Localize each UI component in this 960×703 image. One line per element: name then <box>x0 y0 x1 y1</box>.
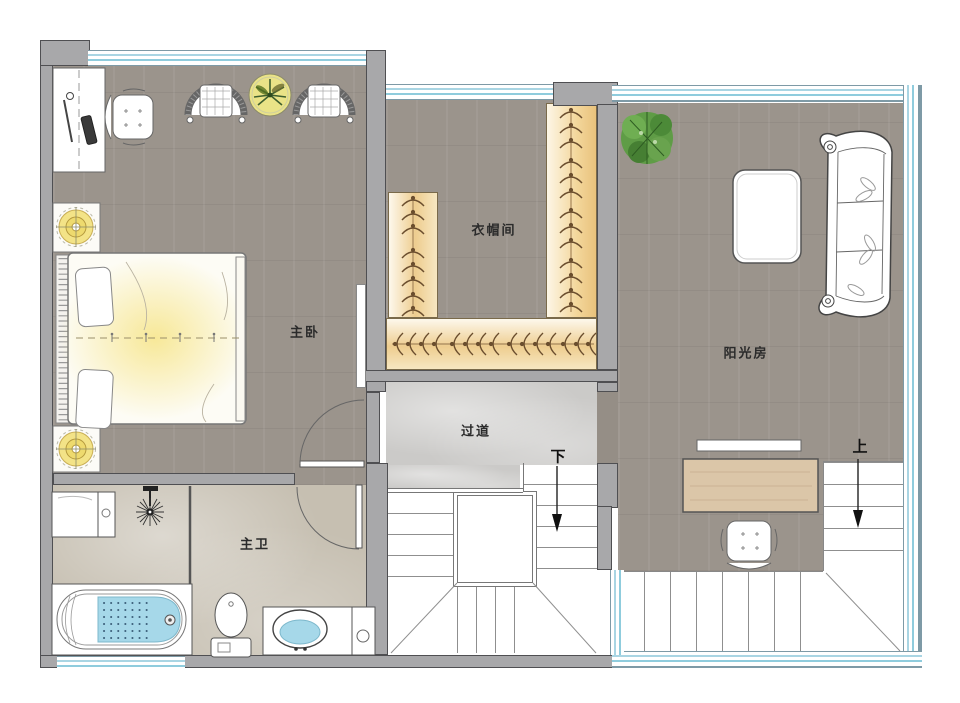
ceiling-shower <box>136 486 164 526</box>
laundry-unit <box>52 492 115 537</box>
coffee-table <box>733 170 801 263</box>
plant-table <box>249 74 291 116</box>
label-sunroom: 阳光房 <box>723 343 768 362</box>
bathtub <box>52 584 192 655</box>
up-arrow <box>853 459 863 528</box>
nightstand-top <box>53 203 100 252</box>
bedroom-desk <box>53 68 105 172</box>
down-arrow <box>552 466 562 532</box>
toilet <box>211 593 251 657</box>
curved-sofa <box>819 131 892 317</box>
label-master-bedroom: 主卧 <box>290 322 320 341</box>
label-master-bathroom: 主卫 <box>240 534 270 553</box>
bathroom-door <box>297 485 362 549</box>
rattan-chair-right <box>295 85 353 123</box>
hanger-rail-left <box>402 196 424 316</box>
bedroom-door <box>300 400 364 467</box>
sunroom-office-chair <box>721 521 777 569</box>
console-shelf <box>697 440 801 451</box>
label-stairs-down: 下 <box>550 446 565 467</box>
hanger-rail-bottom <box>392 333 596 355</box>
sunroom-desk <box>683 459 818 512</box>
stair-winder-lines <box>391 573 900 653</box>
sunroom-plant <box>621 112 673 164</box>
furniture-layer <box>0 0 960 703</box>
double-bed <box>56 253 251 429</box>
bedroom-desk-chair <box>105 89 153 145</box>
rattan-chair-left <box>187 85 245 123</box>
vanity-sink <box>263 607 375 655</box>
label-corridor: 过道 <box>461 421 491 440</box>
label-stairs-up: 上 <box>852 436 867 457</box>
hanger-rail-right <box>560 108 582 312</box>
label-cloakroom: 衣帽间 <box>471 220 516 239</box>
floorplan: 主卧 衣帽间 阳光房 过道 主卫 下 上 <box>0 0 960 703</box>
nightstand-bottom <box>53 426 100 472</box>
